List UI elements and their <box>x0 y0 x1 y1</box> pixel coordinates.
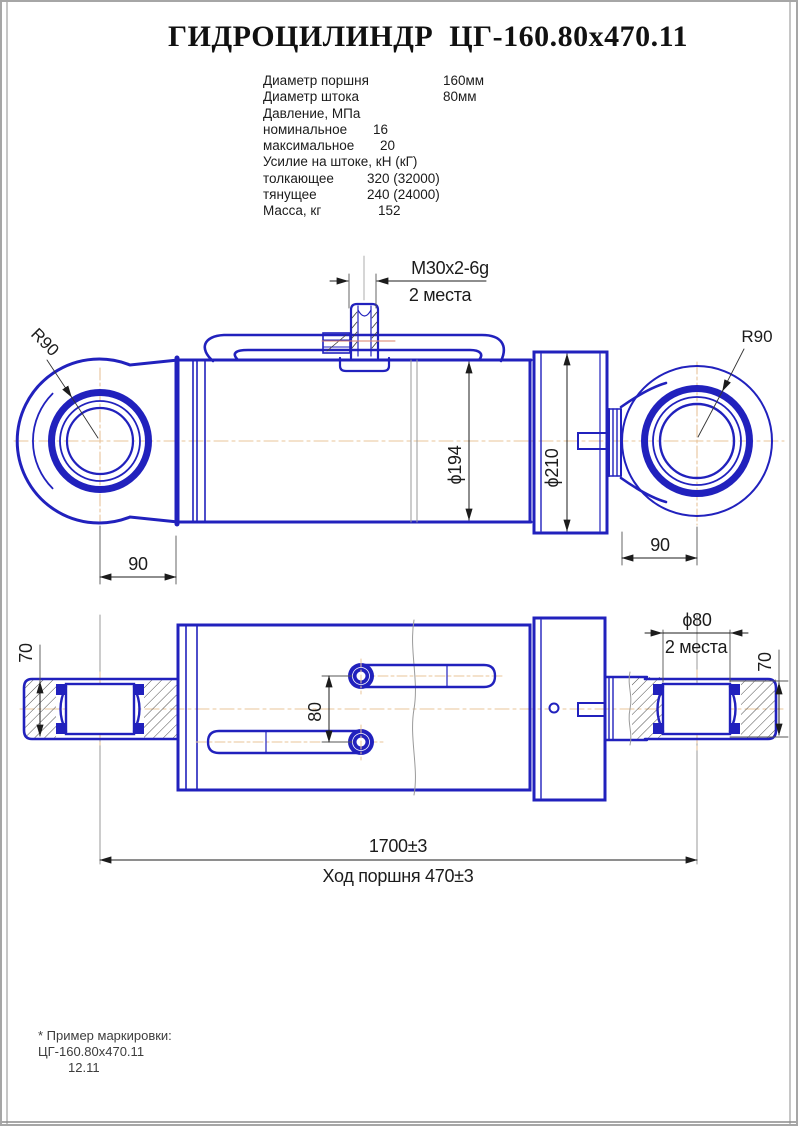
label-70-right: 70 <box>755 652 775 672</box>
label-90-left: 90 <box>128 554 148 574</box>
label-r90-right: R90 <box>741 327 772 346</box>
left-pin-joint <box>24 679 178 739</box>
break-line-plan <box>413 620 416 795</box>
label-stroke: Ход поршня 470±3 <box>323 866 474 886</box>
label-90-right: 90 <box>650 535 670 555</box>
technical-drawing: М30х2-6g 2 места <box>0 0 798 1127</box>
drawing-sheet: ГИДРОЦИЛИНДР ЦГ-160.80х470.11 Диаметр по… <box>0 0 798 1127</box>
gland-dimension: ϕ210 <box>542 354 567 531</box>
label-dia80: ϕ80 <box>682 610 711 630</box>
marking-note: * Пример маркировки: ЦГ-160.80х470.11 12… <box>38 1028 172 1076</box>
gland-block <box>534 352 607 533</box>
hydraulic-pipe <box>205 335 504 361</box>
drain-hole <box>550 704 559 713</box>
overall-length-dim: 1700±3 Ход поршня 470±3 <box>100 836 697 886</box>
label-70-left: 70 <box>16 643 36 663</box>
port-fitting <box>322 256 395 371</box>
side-view: М30х2-6g 2 места <box>14 256 784 584</box>
label-2-places-bottom: 2 места <box>665 637 729 657</box>
label-dia210: ϕ210 <box>542 448 562 487</box>
radius-callout-left: R90 <box>27 324 98 438</box>
label-thread: М30х2-6g <box>411 258 489 278</box>
label-r90-left: R90 <box>27 324 62 359</box>
label-1700: 1700±3 <box>369 836 427 856</box>
label-thread-places: 2 места <box>409 285 473 305</box>
plan-view: 70 <box>16 610 788 886</box>
label-80: 80 <box>305 702 325 722</box>
label-dia194: ϕ194 <box>445 445 465 484</box>
sheet-frame <box>1 1 797 1125</box>
cylinder-body-plan <box>178 625 530 790</box>
marking-example: ЦГ-160.80х470.11 <box>38 1044 172 1060</box>
marking-date: 12.11 <box>68 1060 172 1076</box>
marking-note-title: * Пример маркировки: <box>38 1028 172 1044</box>
